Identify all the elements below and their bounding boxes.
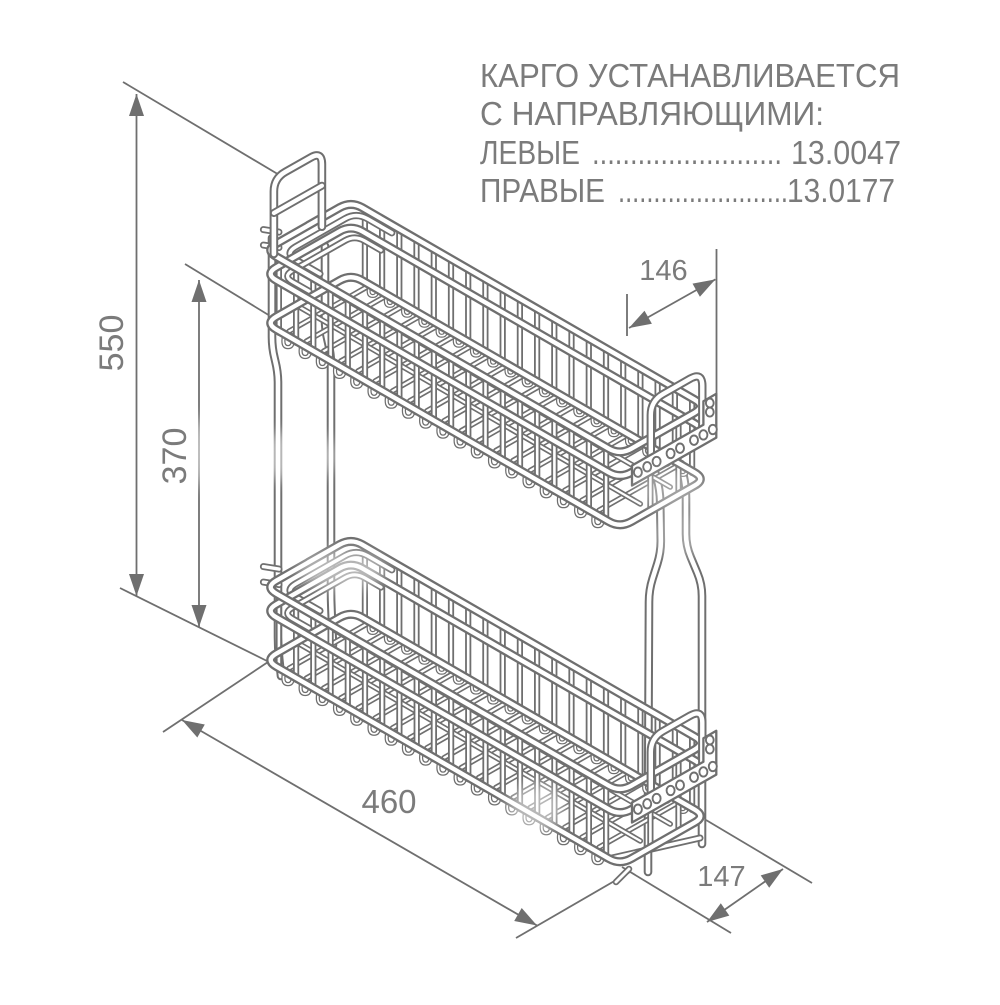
svg-text:13.0177: 13.0177	[787, 172, 895, 209]
svg-text:ЛЕВЫЕ: ЛЕВЫЕ	[480, 134, 580, 171]
svg-text:.........................: .........................	[592, 134, 782, 171]
svg-text:........................: ........................	[618, 172, 788, 209]
svg-text:ПРАВЫЕ: ПРАВЫЕ	[480, 172, 605, 209]
svg-text:КАРГО УСТАНАВЛИВАЕТСЯ: КАРГО УСТАНАВЛИВАЕТСЯ	[480, 57, 900, 94]
svg-text:13.0047: 13.0047	[791, 134, 901, 171]
svg-text:146: 146	[639, 255, 687, 287]
svg-text:550: 550	[93, 315, 131, 372]
svg-text:С НАПРАВЛЯЮЩИМИ:: С НАПРАВЛЯЮЩИМИ:	[480, 95, 824, 132]
svg-text:370: 370	[156, 428, 194, 485]
svg-text:147: 147	[697, 861, 745, 893]
svg-text:460: 460	[361, 783, 416, 820]
